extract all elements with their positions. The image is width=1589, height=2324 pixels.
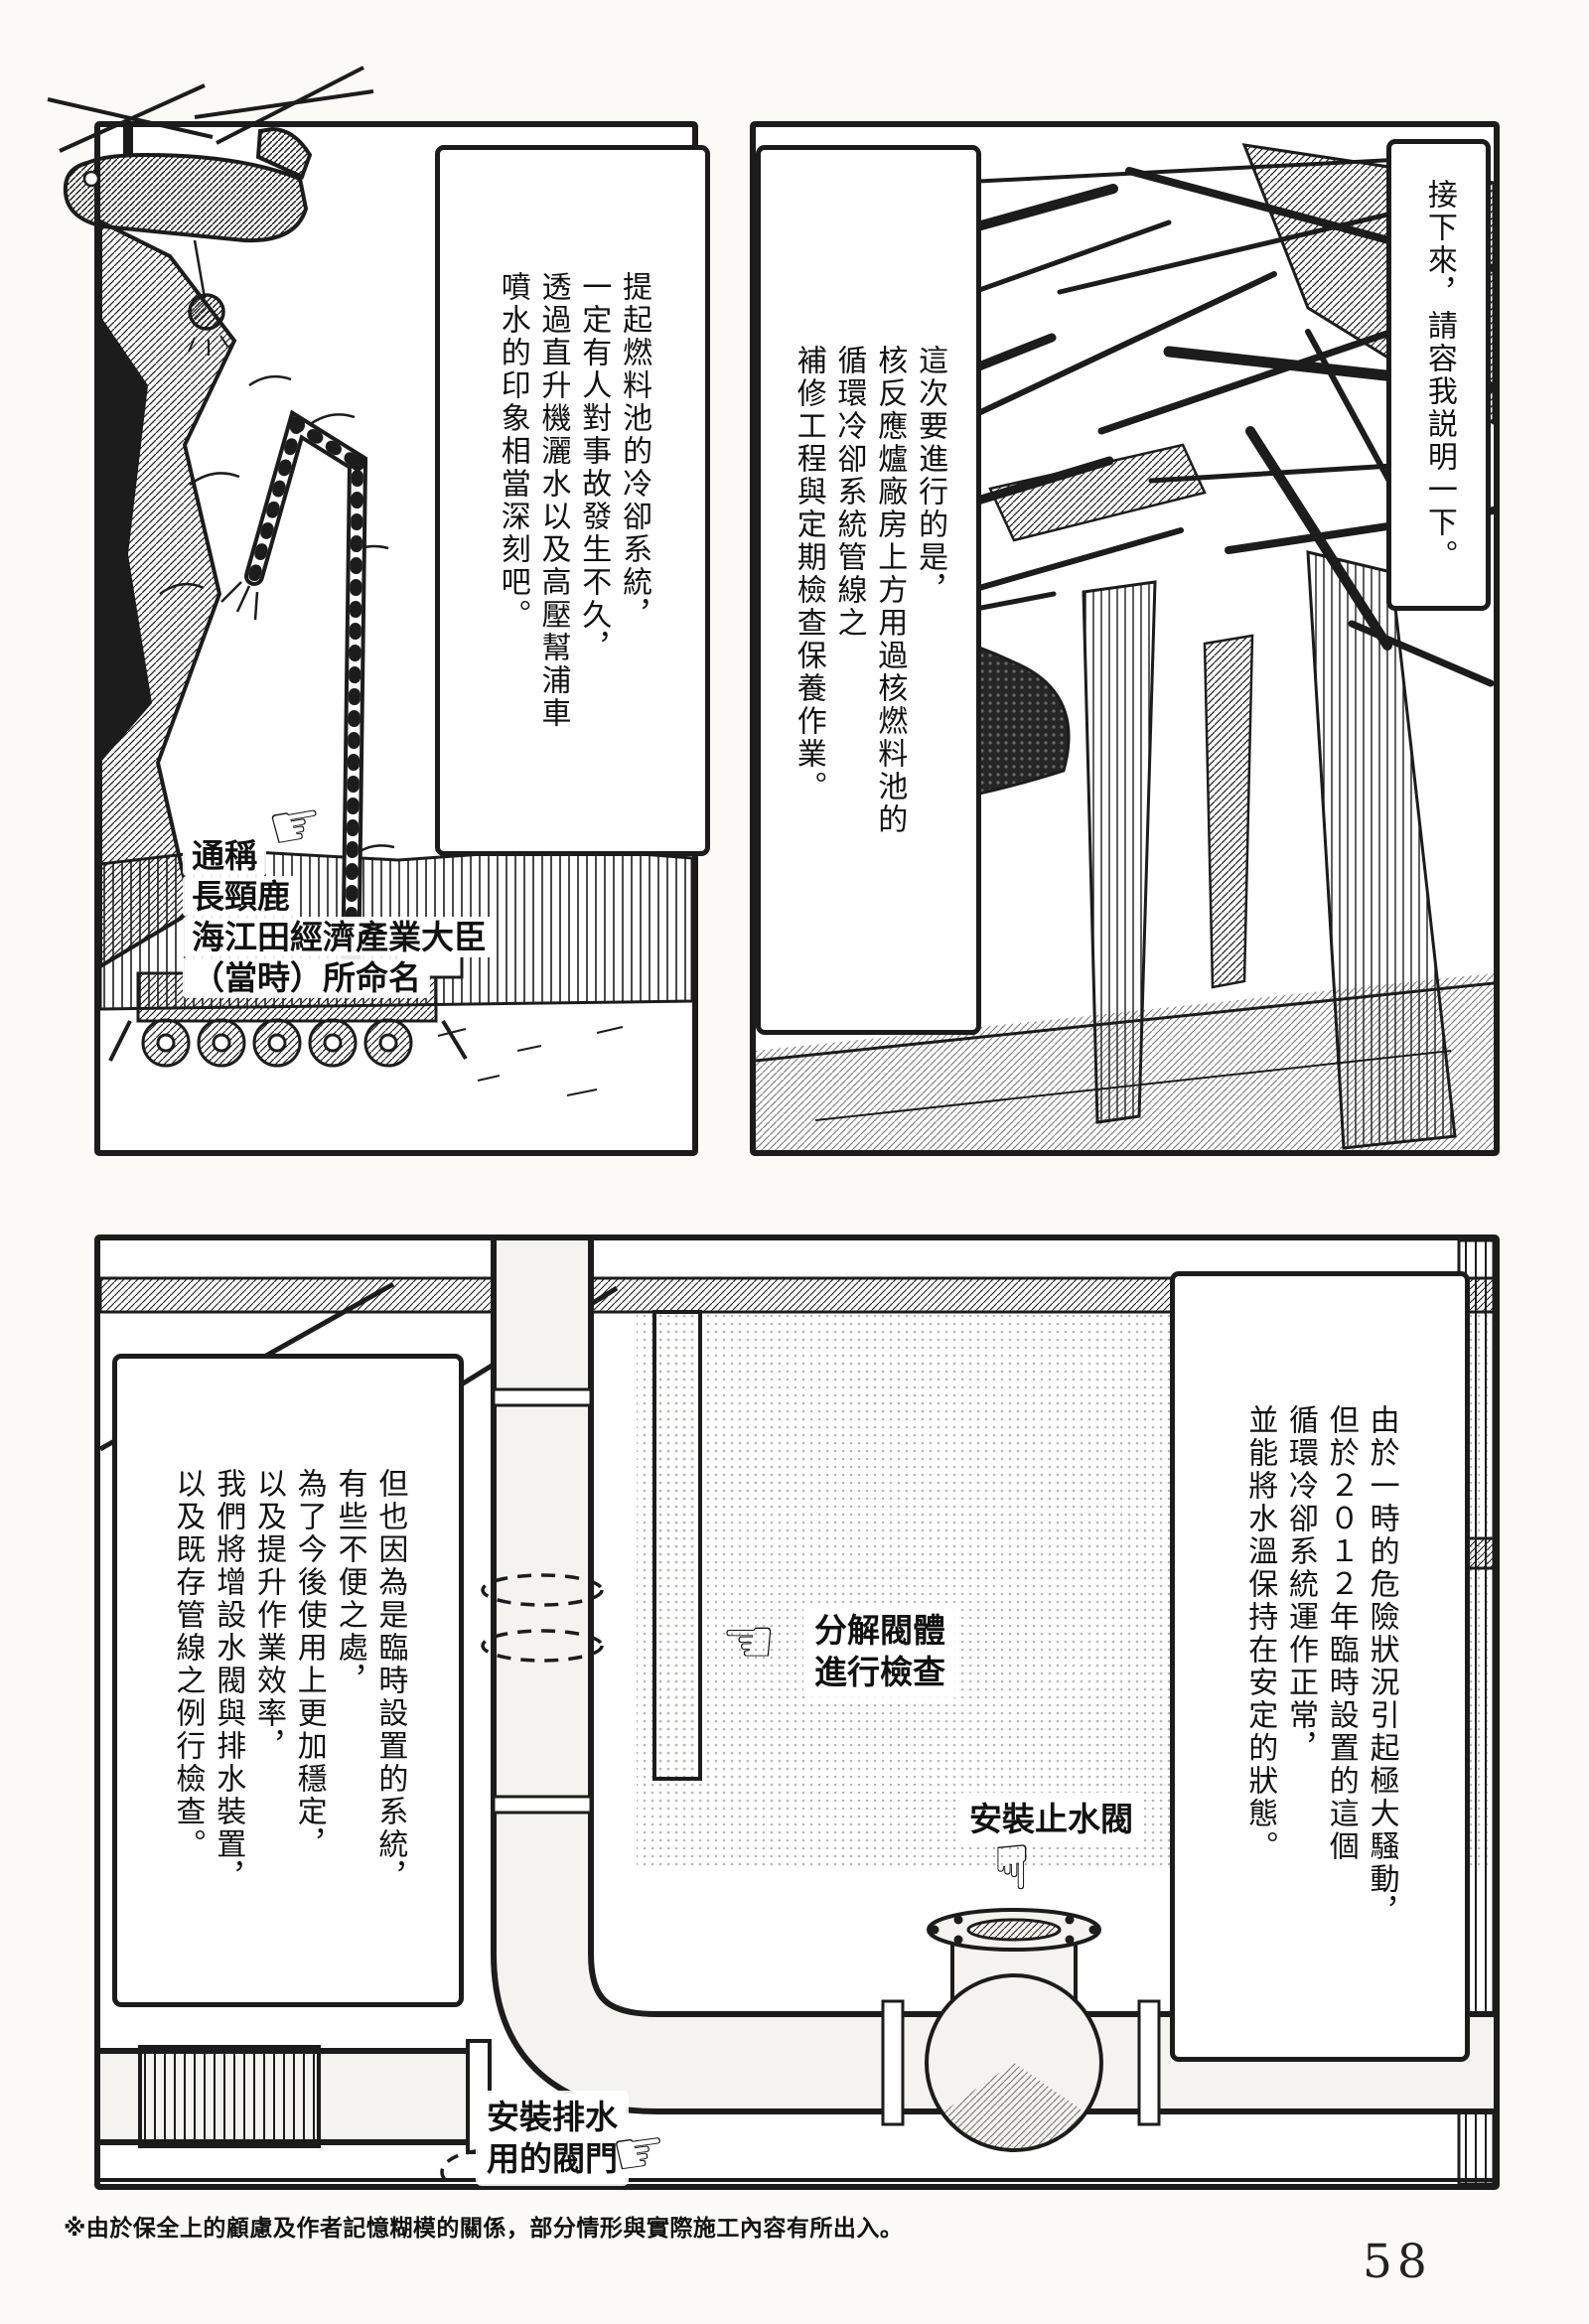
pointing-hand-right-icon-2: ☞	[608, 2117, 671, 2186]
caption-box-stable-operation: 由於一時的危險狀況引起極大騷動， 但於２０１２年臨時設置的這個 循環冷卻系統運作…	[1170, 1271, 1470, 2062]
machine-label-line-1: 通稱	[185, 837, 264, 874]
helicopter-body	[66, 155, 306, 240]
caption-box-narrator: 接下來，請容我説明一下。	[1386, 139, 1491, 611]
manga-page: 提起燃料池的冷卻系統， 一定有人對事故發生不久， 透過直升機灑水以及高壓幫浦車 …	[0, 0, 1589, 2324]
page-number: 58	[1363, 2235, 1432, 2289]
caption-text-maintenance: 這次要進行的是， 核反應爐廠房上方用過核燃料池的 循環冷卻系統管線之 補修工程與…	[788, 345, 949, 836]
ribbed-coupling	[140, 2047, 319, 2146]
pointing-hand-left-icon: ☜	[721, 1611, 777, 1672]
caption-box-maintenance: 這次要進行的是， 核反應爐廠房上方用過核燃料池的 循環冷卻系統管線之 補修工程與…	[756, 145, 981, 1035]
label-disassemble-valve: 分解閥體 進行檢查	[806, 1607, 953, 1696]
label-install-stop-valve: 安裝止水閥	[961, 1796, 1141, 1843]
helicopter-icon	[46, 64, 379, 362]
water-drips	[189, 336, 228, 356]
machine-label-line-2: 長頸鹿	[185, 878, 297, 915]
caption-box-temporary-system: 但也因為是臨時設置的系統， 有些不便之處， 為了今後使用上更加穩定， 以及提升作…	[112, 1354, 464, 2007]
pointing-hand-right-icon: ☞	[263, 791, 329, 861]
machine-label-line-3: 海江田經濟產業大臣	[185, 919, 494, 955]
water-spray	[221, 582, 257, 620]
caption-text-fuel-pool: 提起燃料池的冷卻系統， 一定有人對事故發生不久， 透過直升機灑水以及高壓幫浦車 …	[492, 271, 653, 730]
label-install-drain-valve: 安裝排水 用的閥門	[479, 2094, 626, 2183]
machine-name-label: 通稱 長頸鹿 海江田經濟產業大臣 （當時）所命名	[185, 837, 494, 1000]
rubble-marks	[438, 1027, 623, 1095]
caption-text-temporary-system: 但也因為是臨時設置的系統， 有些不便之處， 為了今後使用上更加穩定， 以及提升作…	[167, 1468, 410, 1894]
caption-box-fuel-pool: 提起燃料池的冷卻系統， 一定有人對事故發生不久， 透過直升機灑水以及高壓幫浦車 …	[435, 145, 710, 856]
water-bucket-icon	[190, 295, 223, 329]
footnote: ※由於保全上的顧慮及作者記憶糊模的關係，部分情形與實際施工內容有所出入。	[64, 2209, 903, 2243]
wall-column	[654, 1312, 700, 1779]
caption-text-narrator: 接下來，請容我説明一下。	[1418, 179, 1459, 572]
drain-pipe	[100, 2041, 490, 2152]
truck-wheels	[143, 1020, 411, 1066]
caption-text-stable-operation: 由於一時的危險狀況引起極大騷動， 但於２０１２年臨時設置的這個 循環冷卻系統運作…	[1238, 1404, 1400, 1929]
rotor-blades	[48, 68, 373, 151]
bucket-cable	[195, 240, 205, 298]
pointing-hand-down-icon: ☟	[993, 1837, 1031, 1899]
machine-label-line-4: （當時）所命名	[185, 959, 428, 996]
